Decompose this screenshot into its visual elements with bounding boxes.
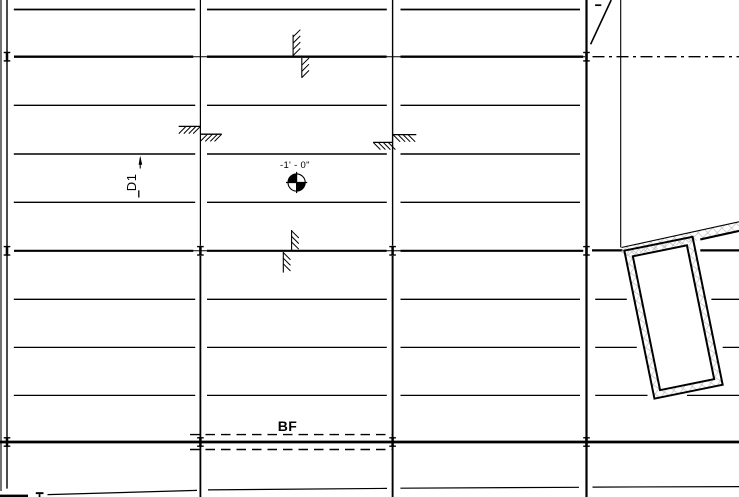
svg-text:-1' - 0": -1' - 0" (280, 160, 310, 171)
svg-text:D1: D1 (124, 173, 139, 191)
svg-text:BF: BF (278, 418, 298, 434)
